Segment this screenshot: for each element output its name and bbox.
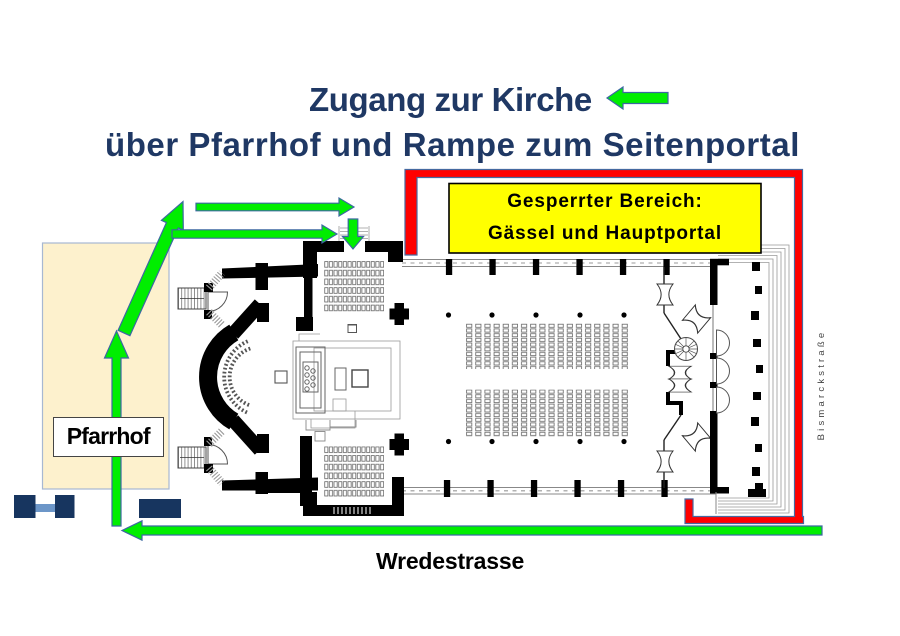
svg-text:Bismarckstraße: Bismarckstraße bbox=[816, 330, 827, 441]
